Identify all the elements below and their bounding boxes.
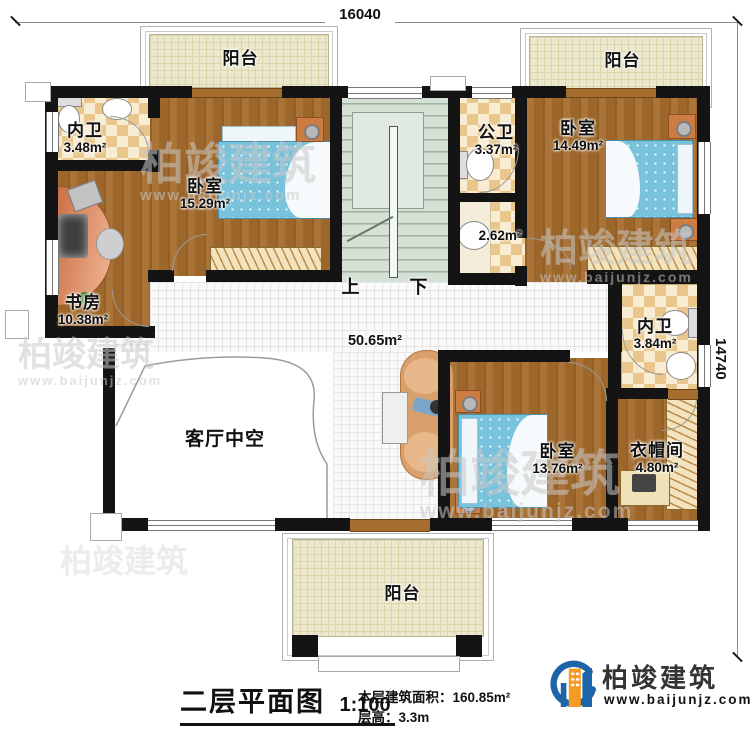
stairs-down-label: 下: [404, 278, 434, 298]
floor-plan: 16040 14740: [0, 0, 750, 732]
watermark: 柏竣建筑: [60, 545, 188, 579]
balcony-step: [318, 656, 460, 672]
watermark: 柏竣建筑 www.baijunjz.com: [18, 338, 162, 387]
dimension-line-right: [737, 22, 738, 658]
brand-name: 柏竣建筑: [602, 658, 718, 695]
room-label-balcony-top-left: 阳台: [208, 50, 273, 69]
balcony-post: [456, 635, 482, 657]
room-label-balcony-bottom: 阳台: [370, 585, 435, 604]
picture-frame: [382, 392, 408, 444]
brand-website: www.baijunjz.com: [604, 692, 750, 707]
floor-area-note: 本层建筑面积：160.85m²: [358, 688, 510, 708]
pilaster: [25, 82, 51, 102]
stair-landing: [352, 112, 424, 209]
dimension-width: 16040: [325, 6, 395, 23]
room-label-bedroom-top-left: 卧室 15.29m²: [160, 178, 250, 212]
room-label-bedroom-top-right: 卧室 14.49m²: [538, 120, 618, 154]
stair-rail: [389, 126, 398, 278]
sink: [666, 352, 696, 380]
room-label-balcony-top-right: 阳台: [590, 52, 655, 71]
nightstand: [296, 117, 324, 142]
balcony-post: [292, 635, 318, 657]
pilaster: [430, 76, 466, 91]
desk-chair: [96, 228, 124, 260]
page-title: 二层平面图: [180, 687, 325, 717]
room-label-cloakroom: 衣帽间 4.80m²: [612, 442, 702, 476]
nightstand: [668, 114, 696, 139]
title-notes: 本层建筑面积：160.85m² 层高：3.3m: [358, 688, 510, 729]
room-label-public-bath: 公卫 3.37m²: [456, 124, 536, 158]
bed-pillow: [677, 144, 693, 214]
room-label-washroom: 2.62m²: [468, 229, 532, 244]
monitor: [58, 214, 88, 258]
stairs-up-label: 上: [336, 278, 366, 298]
room-label-living-void: 客厅中空: [155, 430, 295, 451]
pilaster: [90, 513, 122, 541]
nightstand: [455, 390, 481, 413]
floor-height-note: 层高：3.3m: [358, 708, 510, 728]
dimension-tick: [10, 16, 21, 27]
brand-logo: 柏竣建筑 www.baijunjz.com: [548, 656, 744, 720]
room-label-study: 书房 10.38m²: [42, 294, 124, 328]
room-label-bath-top-left: 内卫 3.48m²: [45, 122, 125, 156]
brand-logo-icon: [548, 658, 596, 716]
room-label-bath-right: 内卫 3.84m²: [615, 318, 695, 352]
room-label-hall-area: 50.65m²: [330, 334, 420, 350]
dimension-height: 14740: [712, 338, 729, 380]
room-label-bedroom-bottom: 卧室 13.76m²: [510, 443, 605, 477]
laptop: [632, 474, 656, 492]
watermark: 柏竣建筑 www.baijunjz.com: [540, 230, 693, 285]
pilaster: [5, 310, 29, 339]
